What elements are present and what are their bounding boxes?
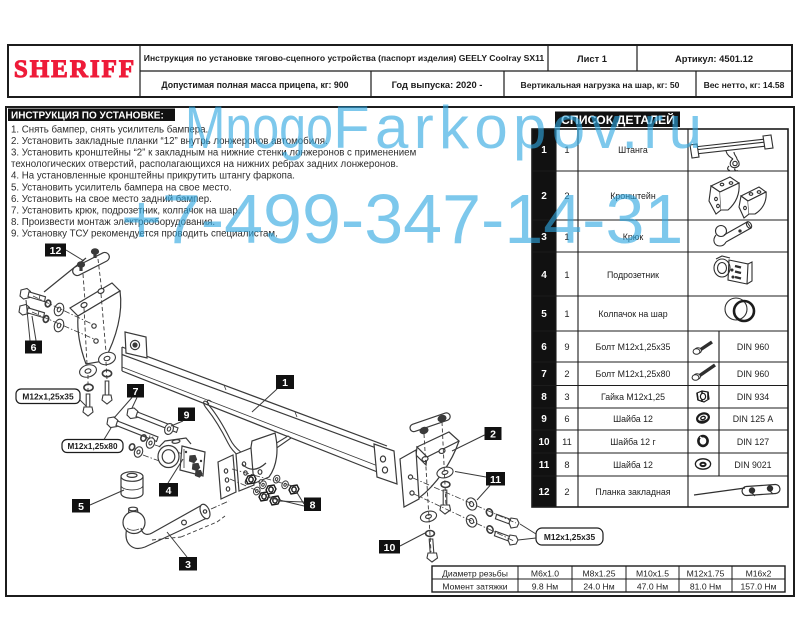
svg-text:10: 10 [538,437,550,448]
svg-text:9: 9 [564,342,569,352]
svg-text:12: 12 [538,487,550,498]
svg-text:6: 6 [541,342,547,353]
svg-text:DIN 934: DIN 934 [737,392,769,402]
svg-text:Шайба 12 г: Шайба 12 г [610,437,655,447]
svg-text:8: 8 [564,460,569,470]
svg-text:Шайба 12: Шайба 12 [613,460,653,470]
svg-text:DIN 9021: DIN 9021 [734,460,771,470]
svg-text:Артикул: 4501.12: Артикул: 4501.12 [675,53,753,64]
svg-text:Допустимая полная масса прицеп: Допустимая полная масса прицепа, кг: 900 [161,80,348,90]
svg-text:DIN 960: DIN 960 [737,369,769,379]
svg-text:8: 8 [541,392,547,403]
svg-text:М6х1.0: М6х1.0 [531,569,559,579]
svg-text:SHERIFF: SHERIFF [14,56,136,83]
svg-text:Планка закладная: Планка закладная [595,487,670,497]
svg-text:1: 1 [282,377,288,389]
svg-text:Лист 1: Лист 1 [577,53,607,64]
svg-text:DIN 960: DIN 960 [737,342,769,352]
svg-text:1. Снять бампер, снять усилите: 1. Снять бампер, снять усилитель бампера… [11,124,208,135]
svg-text:24.0 Нм: 24.0 Нм [583,582,614,592]
svg-text:Вес нетто, кг: 14.58: Вес нетто, кг: 14.58 [704,80,785,90]
svg-text:DIN 125 А: DIN 125 А [733,414,774,424]
svg-text:3: 3 [564,392,569,402]
svg-text:1: 1 [564,270,569,280]
svg-text:М10х1.5: М10х1.5 [636,569,669,579]
svg-text:M12x1,25x35: M12x1,25x35 [544,532,596,542]
svg-text:81.0 Нм: 81.0 Нм [690,582,721,592]
svg-text:2: 2 [490,429,496,441]
svg-text:11: 11 [562,437,572,447]
svg-text:Диаметр резьбы: Диаметр резьбы [442,569,508,579]
svg-text:Болт М12х1,25х80: Болт М12х1,25х80 [596,369,671,379]
svg-text:M12x1,25x35: M12x1,25x35 [22,392,74,402]
svg-text:47.0 Нм: 47.0 Нм [637,582,668,592]
svg-text:Инструкция по установке тягово: Инструкция по установке тягово-сцепного … [144,53,545,63]
svg-text:М12х1.75: М12х1.75 [687,569,725,579]
svg-text:Подрозетник: Подрозетник [607,270,659,280]
svg-text:М8х1.25: М8х1.25 [583,569,616,579]
svg-text:6: 6 [31,342,37,354]
svg-text:Farkopov.ru: Farkopov.ru [333,94,702,161]
svg-text:11: 11 [490,474,501,486]
svg-text:11: 11 [539,460,550,471]
svg-text:Шайба 12: Шайба 12 [613,414,653,424]
svg-text:Колпачок на шар: Колпачок на шар [598,309,667,319]
svg-text:Год выпуска: 2020 -: Год выпуска: 2020 - [392,79,483,90]
svg-text:3: 3 [185,559,191,571]
svg-text:ИНСТРУКЦИЯ ПО УСТАНОВКЕ:: ИНСТРУКЦИЯ ПО УСТАНОВКЕ: [11,111,164,122]
svg-text:Гайка М12х1,25: Гайка М12х1,25 [601,392,665,402]
svg-text:4: 4 [166,485,172,497]
svg-text:Вертикальная нагрузка на шар,: Вертикальная нагрузка на шар, кг: 50 [521,80,680,90]
svg-text:Болт М12х1,25х35: Болт М12х1,25х35 [596,342,671,352]
svg-text:+7-499-347-14-31: +7-499-347-14-31 [121,180,683,258]
svg-text:4: 4 [541,270,547,281]
svg-text:12: 12 [50,245,62,257]
svg-text:9: 9 [541,414,547,425]
svg-text:7: 7 [541,369,547,380]
svg-text:1: 1 [564,309,569,319]
svg-text:5: 5 [541,309,547,320]
svg-text:M12x1,25x80: M12x1,25x80 [67,442,118,451]
svg-text:Mnogo: Mnogo [185,94,333,161]
svg-text:5: 5 [78,501,84,513]
svg-text:8: 8 [310,499,316,511]
svg-text:9: 9 [184,409,190,421]
svg-text:6: 6 [564,414,569,424]
svg-text:9.8 Нм: 9.8 Нм [532,582,559,592]
svg-text:М16х2: М16х2 [746,569,772,579]
svg-text:DIN 127: DIN 127 [737,437,769,447]
svg-text:Момент затяжки: Момент затяжки [442,582,507,592]
svg-text:2: 2 [564,369,569,379]
svg-text:2: 2 [564,487,569,497]
svg-text:7: 7 [133,386,139,398]
svg-text:157.0 Нм: 157.0 Нм [740,582,776,592]
svg-text:10: 10 [384,542,396,554]
